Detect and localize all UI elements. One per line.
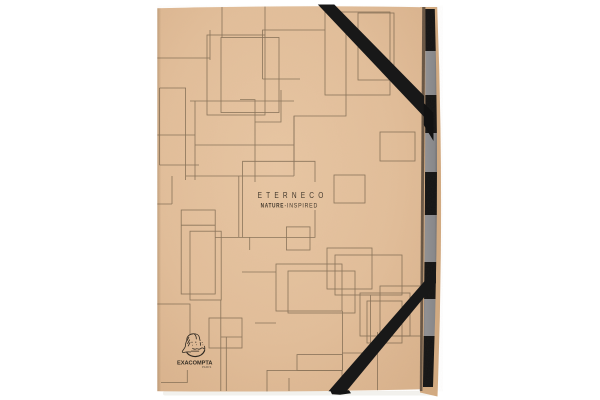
svg-text:NATURE: NATURE (261, 203, 285, 210)
svg-text:-INSPIRED: -INSPIRED (285, 203, 319, 210)
svg-text:ETERNECO: ETERNECO (258, 190, 328, 200)
svg-text:PARIS: PARIS (202, 365, 212, 369)
